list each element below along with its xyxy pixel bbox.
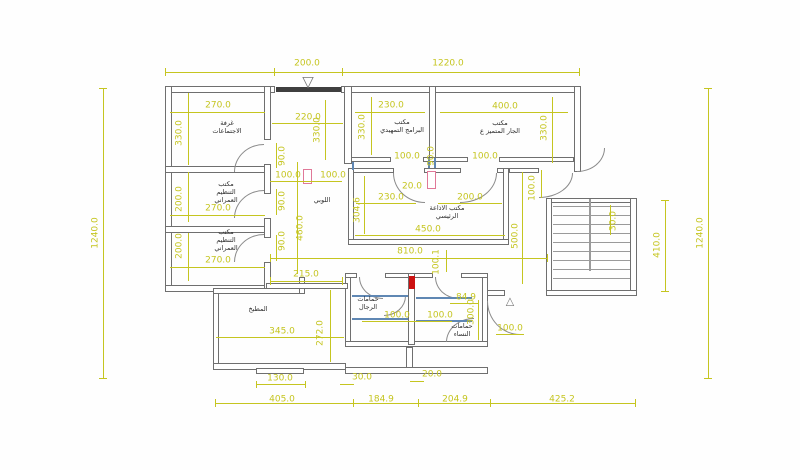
dimension-line [704, 88, 712, 89]
dimension-label: 810.0 [397, 248, 423, 257]
wall-segment [266, 283, 348, 289]
wall-segment [406, 347, 413, 369]
dimension-label: 100.0 [320, 172, 346, 181]
dimension-line [170, 112, 265, 113]
dimension-line [490, 399, 491, 407]
dimension-label: 200.0 [294, 60, 320, 69]
dimension-label: 100.0 [472, 153, 498, 162]
dimension-label: 1240.0 [697, 217, 706, 249]
dimension-line [165, 72, 580, 73]
dimension-label: 215.0 [293, 271, 319, 280]
dimension-line [325, 100, 326, 160]
stair-tread [553, 260, 630, 261]
dimension-label: 204.9 [442, 396, 468, 405]
wall-segment [503, 168, 509, 245]
dimension-label: 90.0 [279, 191, 288, 211]
dimension-line [256, 381, 257, 388]
dimension-label: 90.0 [279, 146, 288, 166]
floorplan-canvas: 200.01220.01240.01240.0410.0270.0330.022… [0, 0, 800, 470]
wall-segment [213, 288, 219, 370]
fixture-line [352, 162, 354, 170]
wall-segment [341, 86, 581, 93]
dimension-line [355, 112, 425, 113]
dimension-line [270, 277, 271, 285]
wall-segment [546, 198, 637, 203]
room-label: حمامات الرجال [357, 295, 378, 311]
dimension-line [579, 68, 580, 76]
stair-tread [553, 278, 630, 279]
room-label: غرفة الاجتماعات [212, 119, 241, 135]
dimension-label: 90.0 [279, 231, 288, 251]
dimension-label: 330.0 [314, 117, 323, 143]
wall-segment [165, 86, 172, 292]
dimension-line [541, 170, 542, 198]
wall-segment [264, 86, 271, 140]
dimension-line [547, 254, 548, 262]
dimension-line [342, 277, 343, 285]
dimension-line [446, 250, 447, 272]
dimension-label: 1220.0 [432, 60, 464, 69]
dimension-line [353, 399, 354, 407]
dimension-label: 20.0 [422, 371, 442, 380]
dimension-label: 405.0 [269, 396, 295, 405]
side-entrance-marker-icon: △ [506, 296, 514, 307]
wall-segment [461, 273, 488, 278]
dimension-line [188, 93, 189, 165]
dimension-line [661, 291, 669, 292]
dimension-line [418, 399, 419, 407]
dimension-label: 100.0 [427, 312, 453, 321]
stair-tread [553, 269, 630, 270]
room-label: حمامات النساء [451, 322, 472, 338]
stair-tread [553, 233, 630, 234]
door-swing-arc [234, 144, 264, 172]
dimension-line [270, 258, 548, 259]
dimension-label: 184.9 [368, 396, 394, 405]
door-swing-arc [234, 190, 264, 218]
dimension-line [170, 267, 265, 268]
dimension-line [170, 215, 265, 216]
stair-tread [553, 242, 630, 243]
dimension-line [708, 88, 709, 379]
dimension-label: 100.0 [529, 175, 538, 201]
dimension-label: 200.0 [457, 194, 483, 203]
room-label: اللوبي [314, 196, 331, 204]
room-label: مكتب الاذاعة الرئيسي [429, 204, 464, 220]
dimension-line [165, 68, 166, 76]
dimension-line [188, 233, 189, 281]
entrance-marker-icon: ▽ [302, 75, 314, 90]
dimension-label: 200.0 [176, 233, 185, 259]
dimension-line [522, 172, 523, 284]
dimension-label: 460.0 [297, 215, 306, 241]
wall-segment [345, 273, 357, 278]
stair-tread [553, 251, 630, 252]
dimension-line [635, 399, 636, 407]
dimension-line [362, 321, 452, 322]
wall-segment [344, 86, 352, 164]
wall-segment [630, 198, 637, 295]
dimension-label: 410.0 [654, 232, 663, 258]
dimension-label: 90.0 [428, 146, 437, 166]
dimension-line [665, 200, 666, 292]
door-swing-arc [539, 173, 573, 198]
stair-tread [553, 206, 630, 207]
dimension-label: 100.0 [275, 172, 301, 181]
room-label: المطبخ [248, 305, 267, 313]
dimension-line [440, 112, 568, 113]
room-label: مكتب البرامج التمهيدي [380, 118, 424, 134]
dimension-line [704, 378, 712, 379]
dimension-line [270, 254, 271, 262]
dimension-label: 304.6 [354, 197, 363, 223]
dimension-line [103, 88, 104, 379]
dimension-label: 130.0 [267, 375, 293, 384]
wall-segment [264, 164, 271, 194]
dimension-label: 230.0 [378, 194, 404, 203]
dimension-label: 330.0 [541, 115, 550, 141]
dimension-label: 400.0 [492, 103, 518, 112]
dimension-label: 330.0 [359, 114, 368, 140]
dimension-label: 230.0 [378, 102, 404, 111]
dimension-label: 345.0 [269, 328, 295, 337]
wall-segment [264, 218, 271, 238]
dimension-line [340, 384, 354, 385]
dimension-label: 200.0 [176, 186, 185, 212]
wall-segment [348, 239, 509, 245]
dimension-line [188, 172, 189, 222]
dimension-label: 450.0 [415, 226, 441, 235]
dimension-line [99, 88, 107, 89]
dimension-line [270, 281, 343, 282]
column-pink [427, 171, 436, 189]
column-red [409, 276, 415, 289]
dimension-label: 270.0 [205, 205, 231, 214]
dimension-line [272, 123, 343, 124]
dimension-line [364, 176, 365, 234]
dimension-line [342, 68, 343, 76]
dimension-label: 100.0 [394, 153, 420, 162]
door-swing-arc [577, 148, 605, 172]
room-label: مكتب التنظيم العمراني [214, 180, 237, 204]
dimension-label: 100.0 [384, 312, 410, 321]
dimension-label: 1240.0 [92, 217, 101, 249]
dimension-line [371, 97, 372, 155]
stair-divider [589, 199, 591, 271]
dimension-label: 425.2 [549, 396, 575, 405]
dimension-line [270, 181, 342, 182]
dimension-line [99, 378, 107, 379]
wall-segment [482, 273, 488, 347]
door-swing-arc [234, 234, 264, 262]
dimension-label: 270.0 [205, 257, 231, 266]
dimension-line [256, 384, 306, 385]
wall-segment [509, 168, 539, 173]
dimension-line [478, 300, 479, 340]
dimension-line [356, 203, 416, 204]
dimension-label: 270.0 [205, 102, 231, 111]
wall-segment [546, 290, 637, 296]
dimension-line [496, 334, 524, 335]
dimension-line [330, 290, 331, 362]
dimension-line [355, 235, 505, 236]
dimension-label: 330.0 [176, 120, 185, 146]
dimension-label: 500.0 [512, 223, 521, 249]
dimension-label: 100.0 [497, 325, 523, 334]
dimension-line [661, 200, 669, 201]
wall-segment [546, 198, 552, 295]
wall-segment [165, 86, 275, 93]
dimension-label: 100.1 [433, 249, 442, 275]
dimension-label: 272.0 [317, 320, 326, 346]
wall-segment [499, 157, 574, 162]
dimension-line [552, 97, 553, 163]
dimension-label: 20.0 [402, 183, 422, 192]
room-label: مكتب التنظيم العمراني [214, 228, 237, 252]
dimension-line [215, 399, 216, 407]
dimension-line [410, 381, 424, 382]
dimension-line [305, 381, 306, 388]
room-label: مكتب الجار المتميز ع [480, 119, 520, 135]
dimension-line [274, 68, 275, 76]
dimension-label: 30.0 [610, 211, 619, 231]
wall-segment [348, 168, 394, 173]
wall-segment [351, 157, 391, 162]
dimension-label: 30.0 [352, 374, 372, 383]
